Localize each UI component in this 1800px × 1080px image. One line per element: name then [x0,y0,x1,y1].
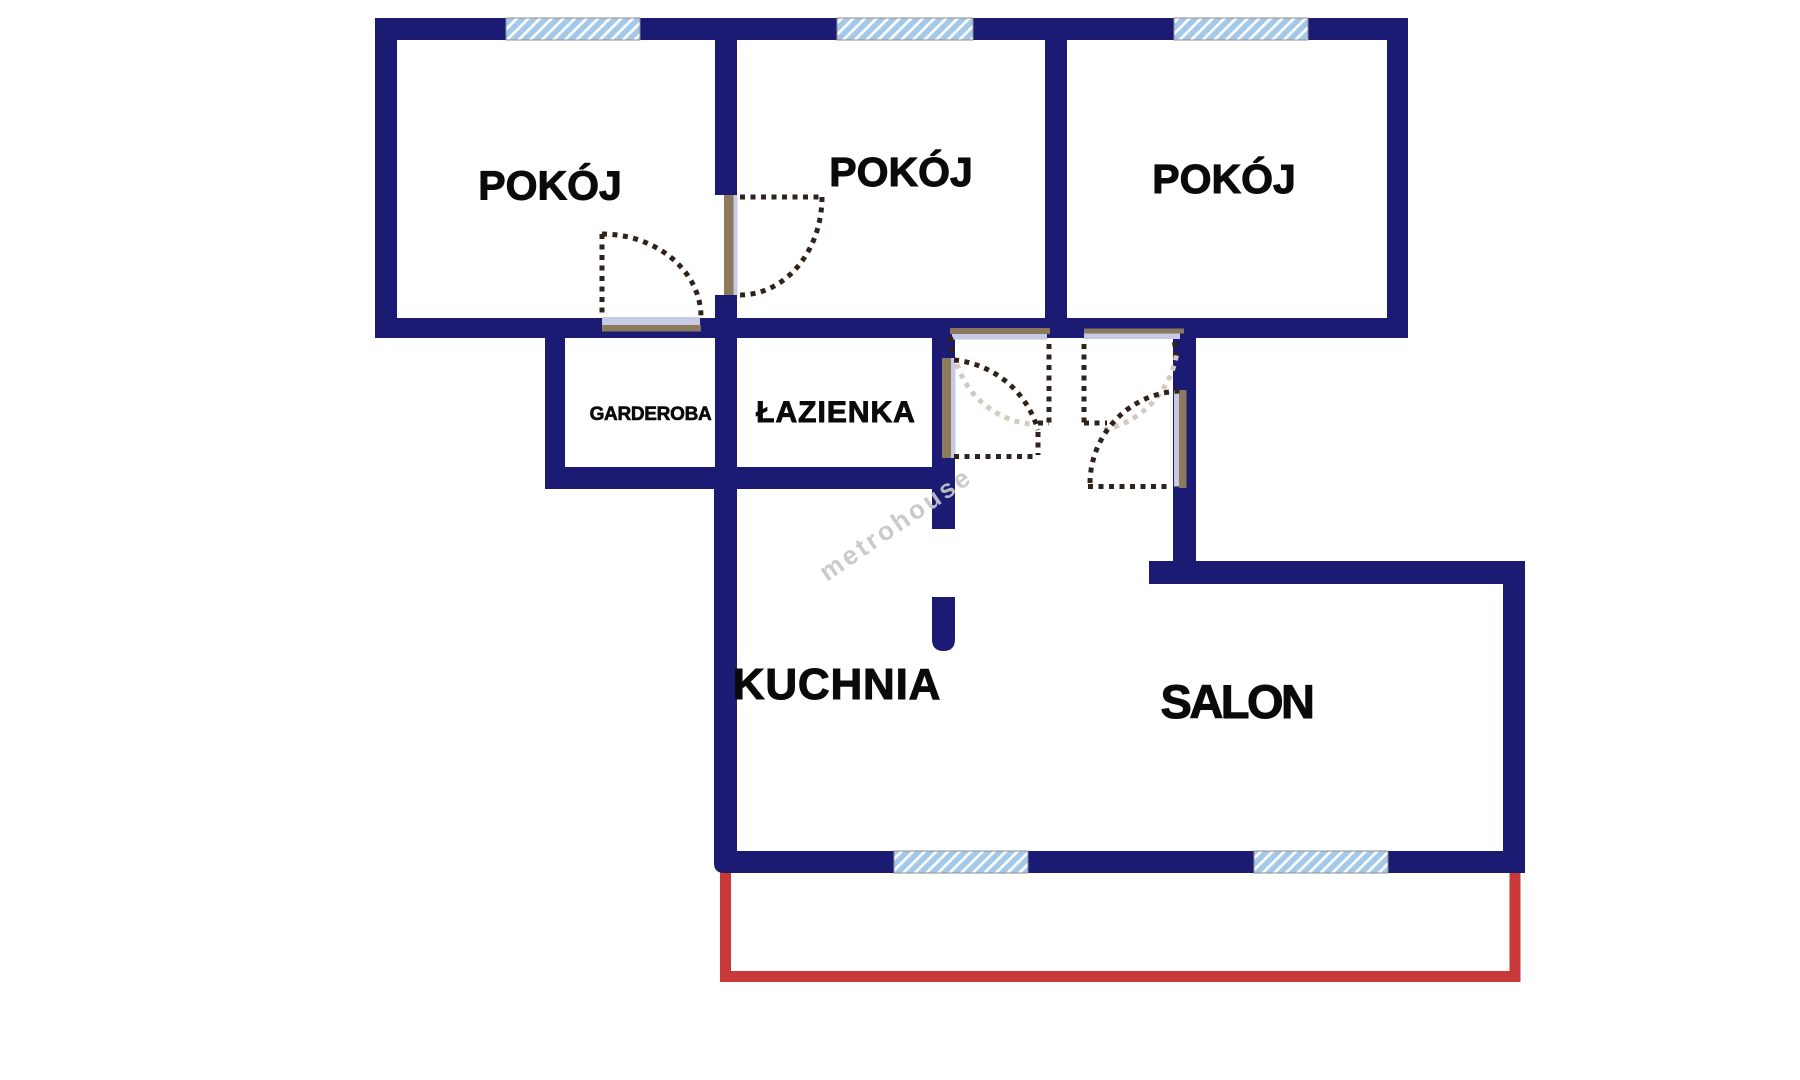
svg-text:POKÓJ: POKÓJ [478,163,622,209]
svg-text:POKÓJ: POKÓJ [1152,156,1296,202]
svg-text:KUCHNIA: KUCHNIA [733,660,941,709]
svg-text:POKÓJ: POKÓJ [829,149,973,195]
svg-text:SALON: SALON [1161,675,1313,728]
svg-text:ŁAZIENKA: ŁAZIENKA [756,396,916,429]
svg-text:GARDEROBA: GARDEROBA [590,404,712,425]
